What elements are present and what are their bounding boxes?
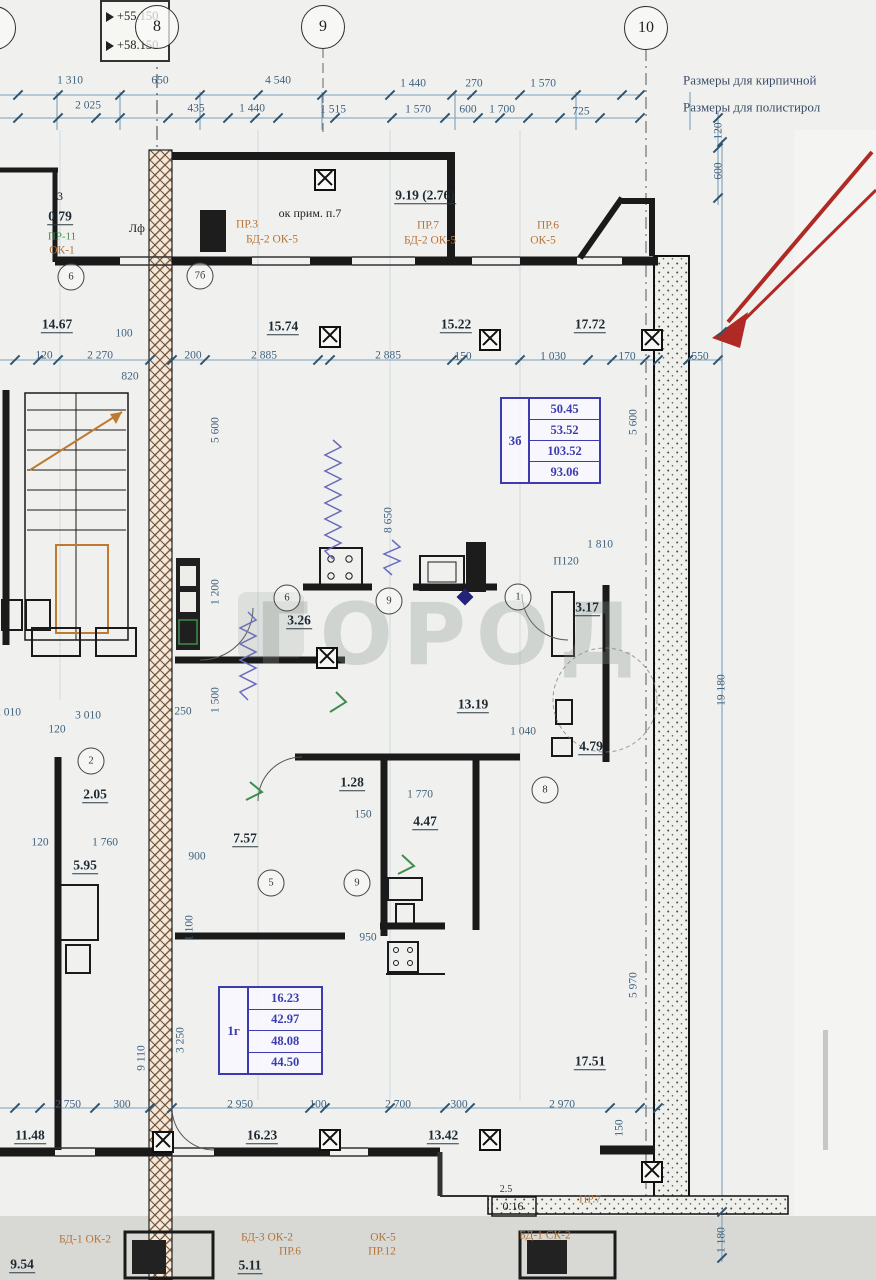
apartment-area-value: 53.52 [530, 419, 599, 440]
dimension-label: 1 770 [407, 789, 433, 801]
elevation-flag-icon [106, 12, 114, 22]
room-area-label: 13.42 [427, 1128, 459, 1144]
dimension-label: 1 760 [92, 837, 118, 849]
apartment-area-value: 48.08 [249, 1030, 321, 1052]
room-area-label: 14.67 [41, 317, 73, 333]
dimension-label: 5 970 [628, 972, 640, 998]
dimension-label: 1 570 [405, 104, 431, 116]
dimension-label: 2 270 [87, 350, 113, 362]
fixture-mark-circle: 1 [505, 584, 532, 611]
dimension-label: 3 250 [175, 1027, 187, 1053]
dimension-label: 2 950 [227, 1099, 253, 1111]
column-symbol [479, 1129, 501, 1151]
note-label: Размеры для полистирол [683, 101, 820, 114]
dimension-label: 2 885 [375, 350, 401, 362]
dimension-label: 8 650 [383, 507, 395, 533]
room-area-label: 4.79 [578, 739, 604, 755]
fixture-mark-circle: 2 [78, 748, 105, 775]
dimension-label: ОК-5 [530, 235, 556, 247]
room-area-label: 7.57 [232, 831, 258, 847]
dimension-label: 550 [691, 351, 708, 363]
dimension-label: 1 810 [587, 539, 613, 551]
apartment-area-value: 93.06 [530, 461, 599, 482]
room-area-label: 17.51 [574, 1054, 606, 1070]
dimension-label: 2 970 [549, 1099, 575, 1111]
dimension-label: 650 [151, 75, 168, 87]
dimension-label: 120 [713, 122, 725, 139]
fixture-mark-circle: 7б [187, 263, 214, 290]
room-area-label: 17.72 [574, 317, 606, 333]
dimension-label: 725 [572, 106, 589, 118]
apartment-stamp-1г: 1г16.2342.9748.0844.50 [218, 986, 323, 1075]
apartment-area-value: 16.23 [249, 988, 321, 1009]
dimension-label: 150 [354, 809, 371, 821]
room-area-label: 15.22 [440, 317, 472, 333]
red-arrow [728, 152, 876, 330]
room-area-label: 3.17 [574, 600, 600, 616]
fixture-mark-circle: 8 [532, 777, 559, 804]
room-area-label: 15.74 [267, 319, 299, 335]
room-area-label: 9.19 (2.76) [394, 188, 456, 204]
dimension-label: БД-2 ОК-5 [404, 235, 456, 247]
dimension-label: 3 [57, 190, 63, 202]
fixture-mark-circle: 5 [258, 870, 285, 897]
dimension-label: 1 200 [210, 579, 222, 605]
dimension-label: 2.5 [500, 1185, 513, 1195]
dimension-label: 5 600 [210, 417, 222, 443]
room-area-label: 11.48 [14, 1128, 46, 1144]
dimension-label: Лф [129, 222, 145, 234]
dimension-label: 1 440 [239, 103, 265, 115]
dimension-label: 100 [115, 328, 132, 340]
dimension-label: ПР-11 [48, 232, 76, 243]
room-area-label: 0.79 [47, 209, 73, 225]
dimension-label: ПР.12 [368, 1246, 396, 1258]
column-symbol [641, 1161, 663, 1183]
dimension-label: 1 180 [716, 1227, 728, 1253]
dimension-label: 120 [48, 724, 65, 736]
dimension-label: 1 030 [540, 351, 566, 363]
dimension-label: БД-1 СК-2 [519, 1230, 570, 1242]
dimension-label: 4 540 [265, 75, 291, 87]
room-area-label: 1.28 [339, 775, 365, 791]
dimension-label: 1 500 [210, 687, 222, 713]
dimension-label: 600 [713, 162, 725, 179]
column-symbol [319, 326, 341, 348]
dimension-label: 0.16 [503, 1200, 524, 1212]
dimension-label: 2 750 [55, 1099, 81, 1111]
dimension-label: ОК-1 [49, 245, 75, 257]
dimension-label: 1 570 [530, 78, 556, 90]
dimension-label: 1 040 [510, 726, 536, 738]
fixture-mark-circle: 9 [376, 588, 403, 615]
dimension-label: 250 [174, 706, 191, 718]
apartment-unit-label: 3б [502, 399, 530, 482]
dimension-label: 120 [31, 837, 48, 849]
dimension-label: 150 [614, 1119, 626, 1136]
column-symbol [479, 329, 501, 351]
dimension-label: 2 010 [0, 707, 21, 719]
dimension-label: 1 310 [57, 75, 83, 87]
apartment-area-value: 103.52 [530, 440, 599, 461]
dimension-label: БД-3 ОК-2 [241, 1232, 293, 1244]
note-label: Размеры для кирпичной [683, 74, 816, 87]
dimension-label: 9 110 [136, 1045, 148, 1070]
column-symbol [316, 647, 338, 669]
dimension-label: ОК-5 [370, 1232, 396, 1244]
room-area-label: 5.95 [72, 858, 98, 874]
column-symbol [319, 1129, 341, 1151]
apartment-stamp-3б: 3б50.4553.52103.5293.06 [500, 397, 601, 484]
fixture-mark-circle: 6 [58, 264, 85, 291]
apartment-area-value: 42.97 [249, 1009, 321, 1031]
dimension-label: ПР.6 [279, 1246, 301, 1258]
room-area-label: 4.47 [412, 814, 438, 830]
axis-bubble-10: 10 [624, 6, 668, 50]
dimension-label: 300 [113, 1099, 130, 1111]
dimension-label: 3 010 [75, 710, 101, 722]
axis-bubble-9: 9 [301, 5, 345, 49]
apartment-unit-label: 1г [220, 988, 249, 1073]
fixture-mark-circle: 9 [344, 870, 371, 897]
dimension-label: ПР.7 [417, 220, 439, 232]
room-area-label: 5.11 [238, 1258, 263, 1274]
column-symbol [641, 329, 663, 351]
dimension-label: 600 [459, 104, 476, 116]
dimension-label: ПР.3 [236, 219, 258, 231]
room-area-label: 16.23 [246, 1128, 278, 1144]
room-area-label: 3.26 [286, 613, 312, 629]
elevation-flag-icon [106, 41, 114, 51]
dimension-label: 5 600 [628, 409, 640, 435]
dimension-label: 1 440 [400, 78, 426, 90]
dimension-label: ок прим. п.7 [279, 207, 342, 219]
room-area-label: 2.05 [82, 787, 108, 803]
dimension-label: 1 100 [184, 915, 196, 941]
dimension-label: П120 [553, 556, 579, 568]
dimension-label: 300 [450, 1099, 467, 1111]
dimension-label: ПР.7 [579, 1194, 601, 1206]
dimension-label: 820 [121, 371, 138, 383]
axis-bubble-8: 8 [135, 5, 179, 49]
dimension-label: 2 885 [251, 350, 277, 362]
dimension-label: 950 [359, 932, 376, 944]
room-area-label: 9.54 [9, 1257, 35, 1273]
dimension-label: БД-1 ОК-2 [59, 1234, 111, 1246]
dimension-label: 200 [184, 350, 201, 362]
column-symbol [152, 1131, 174, 1153]
apartment-area-value: 50.45 [530, 399, 599, 419]
dimension-label: 900 [188, 851, 205, 863]
dimension-label: 1 515 [320, 104, 346, 116]
dimension-label: ПР.6 [537, 220, 559, 232]
fixture-mark-circle: 6 [274, 585, 301, 612]
room-area-label: 13.19 [457, 697, 489, 713]
dimension-label: БД-2 ОК-5 [246, 234, 298, 246]
dimension-label: 19 180 [716, 674, 728, 706]
apartment-area-value: 44.50 [249, 1052, 321, 1074]
dimension-label: 270 [465, 78, 482, 90]
dimension-label: 2 025 [75, 100, 101, 112]
dimension-label: 170 [618, 351, 635, 363]
floor-plan-canvas: ГОРОД +55.150 +58.150 Размеры для кирпич… [0, 0, 876, 1280]
column-symbol [314, 169, 336, 191]
